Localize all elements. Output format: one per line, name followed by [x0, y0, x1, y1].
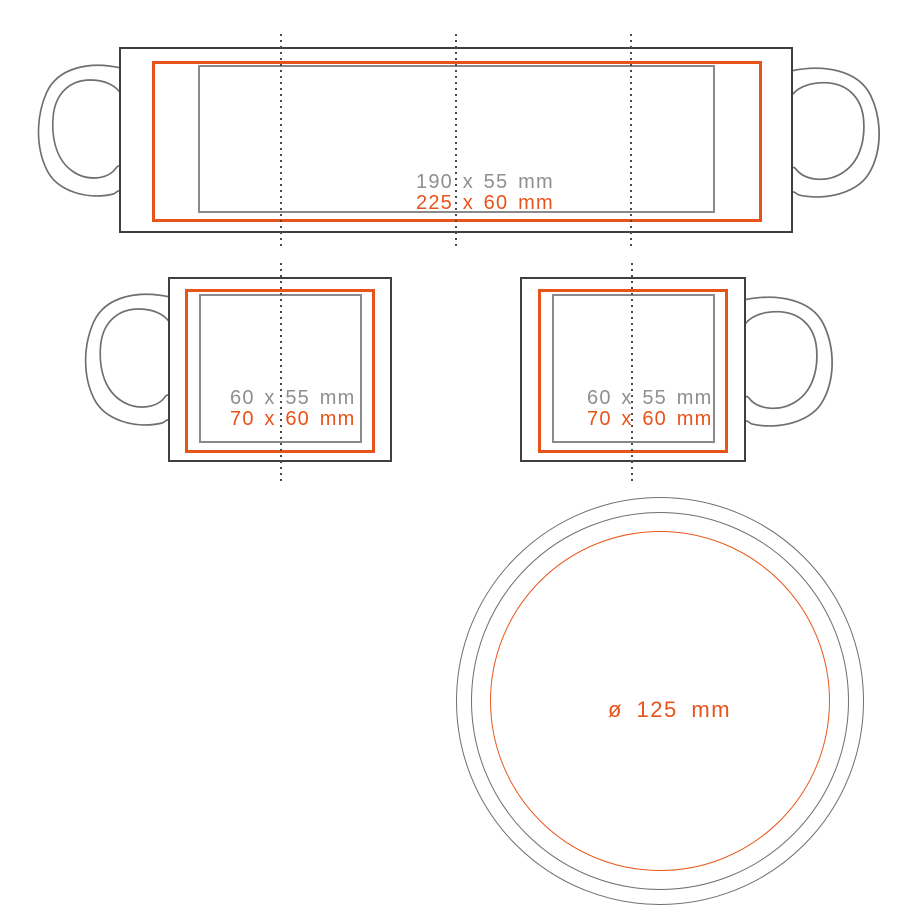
- mug-print-template-diagram: 190 x 55 mm 225 x 60 mm 60 x 55 mm 70 x …: [0, 0, 900, 923]
- wrap-bleed-size-label: 225 x 60 mm: [416, 193, 554, 214]
- base-diameter-label: ø 125 mm: [608, 698, 731, 722]
- wrap-print-size-label: 190 x 55 mm: [416, 172, 554, 193]
- front-right-dimension-labels: 60 x 55 mm 70 x 60 mm: [587, 388, 712, 430]
- front-left-guide-line: [280, 263, 282, 481]
- wrap-dimension-labels: 190 x 55 mm 225 x 60 mm: [416, 172, 554, 214]
- mug-handle-right-icon: [791, 64, 885, 200]
- front-right-print-size-label: 60 x 55 mm: [587, 388, 712, 409]
- wrap-guide-line-center: [455, 34, 457, 247]
- wrap-guide-line-left: [280, 34, 282, 247]
- front-left-handle-icon: [80, 290, 170, 428]
- front-right-bleed-size-label: 70 x 60 mm: [587, 409, 712, 430]
- mug-handle-left-icon: [33, 61, 121, 199]
- front-right-handle-icon: [744, 293, 838, 429]
- front-left-dimension-labels: 60 x 55 mm 70 x 60 mm: [230, 388, 355, 430]
- wrap-guide-line-right: [630, 34, 632, 247]
- front-left-bleed-size-label: 70 x 60 mm: [230, 409, 355, 430]
- front-left-print-size-label: 60 x 55 mm: [230, 388, 355, 409]
- front-right-guide-line: [631, 263, 633, 481]
